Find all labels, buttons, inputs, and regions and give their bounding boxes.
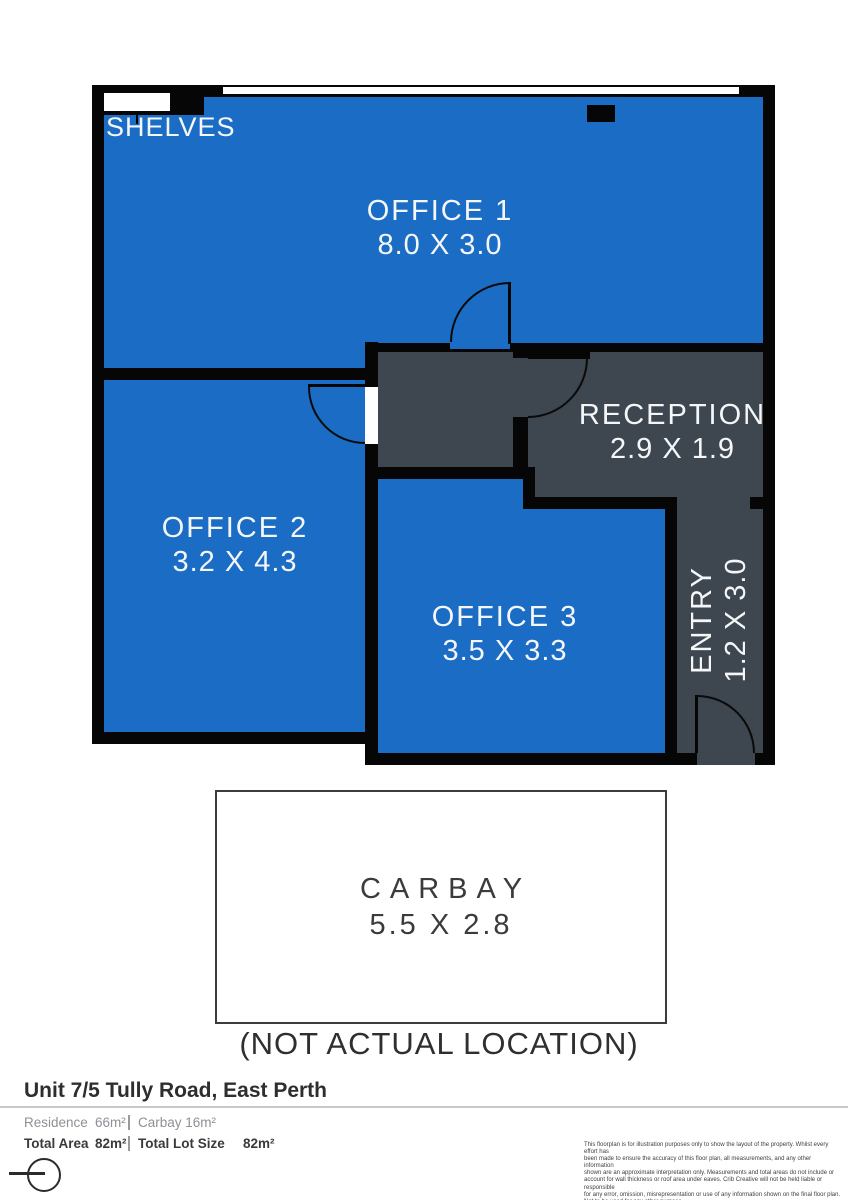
wall-door1-threshold	[450, 349, 510, 352]
total-lot-label: Total Lot Size	[138, 1136, 225, 1151]
compass-needle	[9, 1172, 45, 1175]
disclaimer-line: been made to ensure the accuracy of this…	[584, 1156, 842, 1170]
carbay-dims: 5.5 X 2.8	[369, 907, 512, 943]
office3-name: OFFICE 3	[380, 600, 630, 634]
shelves-label: SHELVES	[106, 112, 236, 143]
spec-divider-2	[128, 1136, 130, 1151]
total-area-value: 82m²	[95, 1136, 127, 1151]
divider-rule	[0, 1106, 848, 1108]
wall-office3-entry-divider	[665, 497, 677, 753]
carbay-summary: Carbay 16m²	[138, 1115, 216, 1130]
carbay-name: CARBAY	[351, 871, 531, 907]
office1-name: OFFICE 1	[315, 194, 565, 228]
disclaimer-line: shown are an approximate interpretation …	[584, 1170, 842, 1177]
entry-label: ENTRY 1.2 X 3.0	[685, 535, 751, 705]
entry-dims: 1.2 X 3.0	[719, 535, 753, 705]
spec-divider-1	[128, 1115, 130, 1130]
office2-name: OFFICE 2	[110, 511, 360, 545]
entry-name: ENTRY	[685, 535, 719, 705]
total-area-label: Total Area	[24, 1136, 89, 1151]
wall-left	[92, 85, 104, 744]
column	[587, 105, 615, 122]
disclaimer-line: for any error, omission, misrepresentati…	[584, 1192, 842, 1199]
entry-door-gap	[697, 753, 755, 765]
wall-office2-top	[92, 368, 368, 380]
disclaimer-line: This floorplan is for illustration purpo…	[584, 1142, 842, 1156]
floorplan-page: SHELVES OFFICE 1 8.0 X 3.0 OFFICE 2 3.2 …	[0, 0, 848, 1200]
office2-label: OFFICE 2 3.2 X 4.3	[110, 511, 360, 579]
wall-corridor-bottom	[365, 467, 523, 479]
wall-corridor-top	[365, 343, 450, 352]
wall-office3-bottom	[365, 753, 697, 765]
disclaimer-text: This floorplan is for illustration purpo…	[584, 1142, 842, 1200]
reception-name: RECEPTION	[560, 398, 785, 432]
wall-office2-bottom	[92, 732, 378, 744]
window-strip	[223, 87, 739, 94]
wall-reception-bottom-stub	[750, 497, 763, 509]
office3-dims: 3.5 X 3.3	[380, 634, 630, 668]
compass-icon	[27, 1158, 61, 1192]
address-title: Unit 7/5 Tully Road, East Perth	[24, 1079, 327, 1103]
wall-reception-bottom	[523, 497, 677, 509]
residence-label: Residence	[24, 1115, 88, 1130]
reception-label: RECEPTION 2.9 X 1.9	[560, 398, 785, 466]
wall-reception-divider-upper	[513, 343, 528, 358]
disclaimer-line: account for wall thickness or roof area …	[584, 1177, 842, 1191]
shelves-inset	[104, 93, 170, 111]
wall-office2-office3-divider	[365, 467, 378, 765]
carbay-box: CARBAY 5.5 X 2.8	[215, 790, 667, 1024]
total-lot-value: 82m²	[243, 1136, 275, 1151]
carbay-location-note: (NOT ACTUAL LOCATION)	[165, 1026, 713, 1062]
reception-lower-strip	[535, 479, 665, 497]
reception-dims: 2.9 X 1.9	[560, 432, 785, 466]
corridor-area	[378, 352, 528, 467]
office1-dims: 8.0 X 3.0	[315, 228, 565, 262]
office1-label: OFFICE 1 8.0 X 3.0	[315, 194, 565, 262]
office3-label: OFFICE 3 3.5 X 3.3	[380, 600, 630, 668]
office2-dims: 3.2 X 4.3	[110, 545, 360, 579]
residence-value: 66m²	[95, 1115, 126, 1130]
